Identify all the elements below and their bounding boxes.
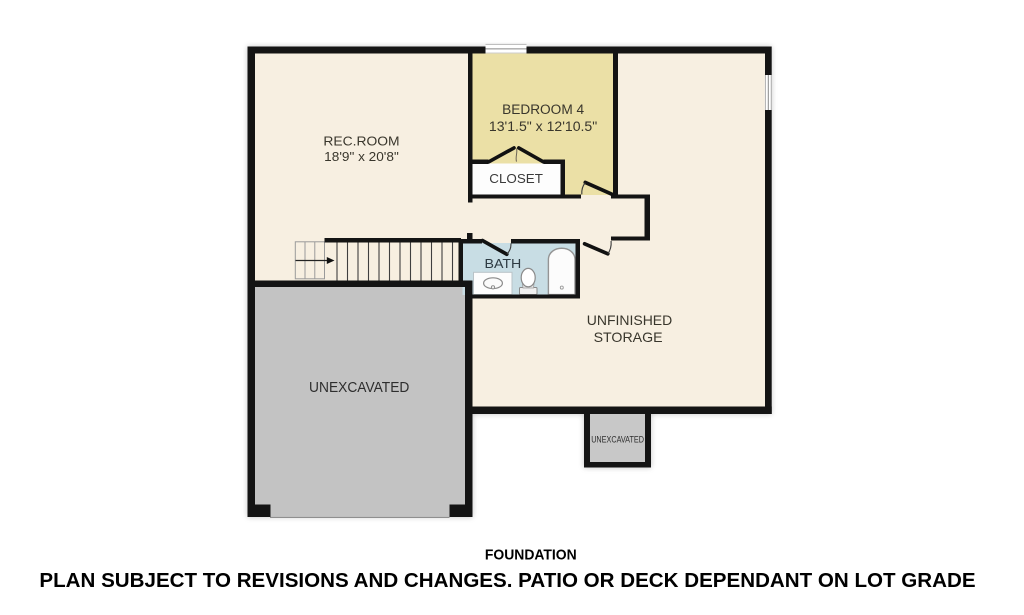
svg-text:FOUNDATION: FOUNDATION (485, 547, 577, 563)
svg-text:UNEXCAVATED: UNEXCAVATED (309, 379, 409, 396)
svg-text:13'1.5" x 12'10.5": 13'1.5" x 12'10.5" (489, 119, 598, 134)
svg-text:BEDROOM 4: BEDROOM 4 (502, 102, 585, 117)
svg-text:BATH: BATH (485, 256, 522, 271)
svg-text:STORAGE: STORAGE (594, 329, 663, 345)
svg-text:REC.ROOM: REC.ROOM (323, 133, 399, 148)
svg-text:CLOSET: CLOSET (489, 172, 543, 186)
svg-text:UNEXCAVATED: UNEXCAVATED (591, 434, 644, 445)
svg-text:18'9" x 20'8": 18'9" x 20'8" (324, 149, 399, 164)
svg-text:PLAN SUBJECT TO REVISIONS AND: PLAN SUBJECT TO REVISIONS AND CHANGES. P… (39, 570, 975, 592)
svg-text:UNFINISHED: UNFINISHED (587, 312, 673, 328)
